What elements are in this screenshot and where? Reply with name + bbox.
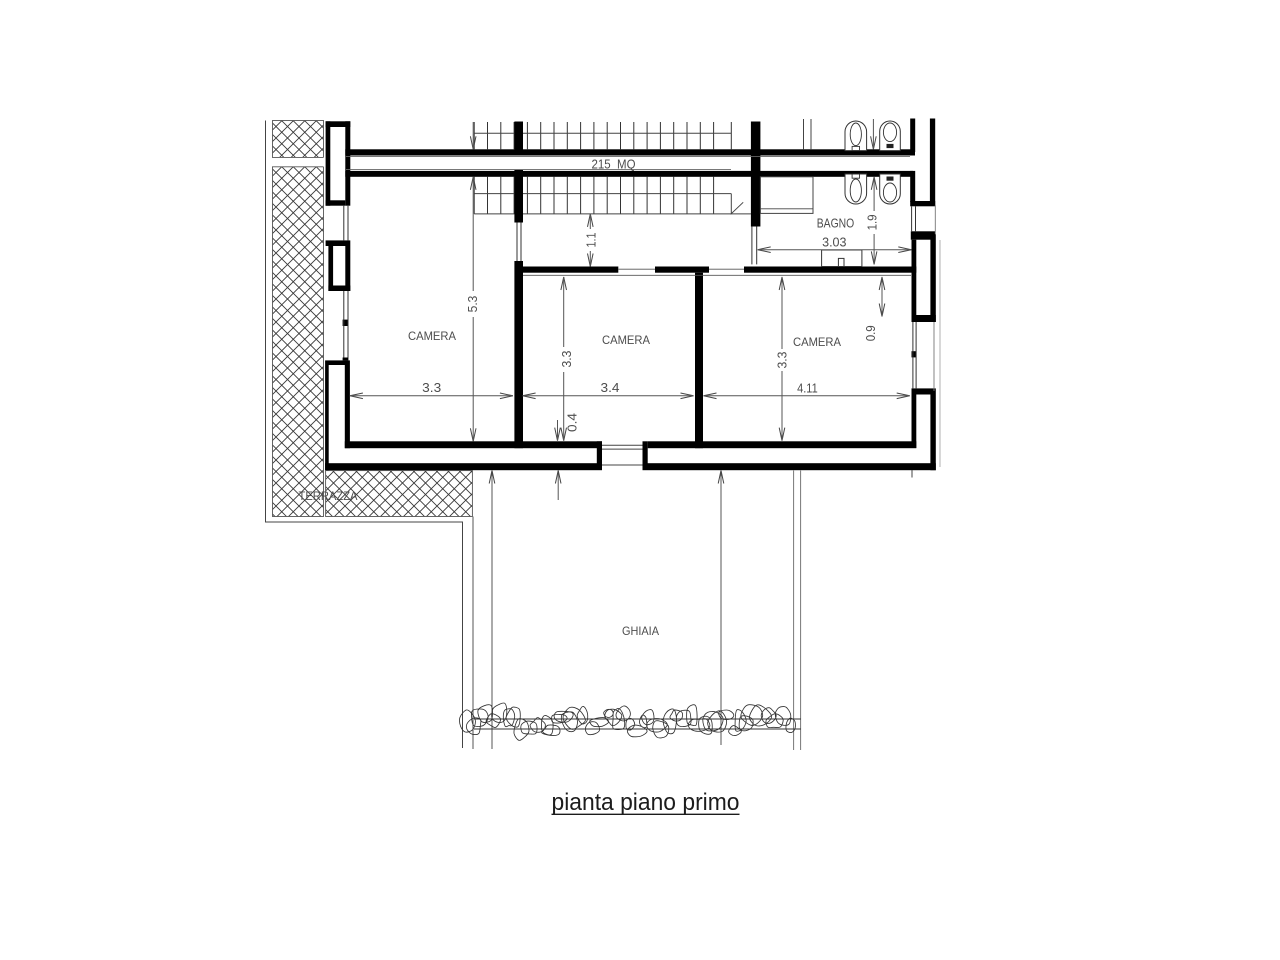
svg-text:0.9: 0.9 xyxy=(863,325,878,341)
svg-text:3.3: 3.3 xyxy=(559,351,574,368)
svg-text:1.1: 1.1 xyxy=(584,233,599,248)
svg-text:pianta piano primo: pianta piano primo xyxy=(552,789,740,816)
svg-text:215 MQ: 215 MQ xyxy=(592,158,636,172)
svg-text:3.3: 3.3 xyxy=(775,352,790,369)
svg-text:0.4: 0.4 xyxy=(564,413,579,432)
svg-text:3.4: 3.4 xyxy=(601,380,620,395)
svg-text:1.9: 1.9 xyxy=(864,214,879,230)
svg-text:5.3: 5.3 xyxy=(465,296,480,313)
svg-text:BAGNO: BAGNO xyxy=(817,216,855,230)
svg-text:GHIAIA: GHIAIA xyxy=(622,624,659,638)
svg-text:TERRAZZA: TERRAZZA xyxy=(299,489,358,503)
svg-text:4.11: 4.11 xyxy=(797,381,818,396)
svg-text:CAMERA: CAMERA xyxy=(602,333,650,347)
svg-text:CAMERA: CAMERA xyxy=(408,329,456,343)
svg-text:3.3: 3.3 xyxy=(422,380,441,395)
svg-text:CAMERA: CAMERA xyxy=(793,335,841,349)
svg-text:3.03: 3.03 xyxy=(822,235,846,250)
